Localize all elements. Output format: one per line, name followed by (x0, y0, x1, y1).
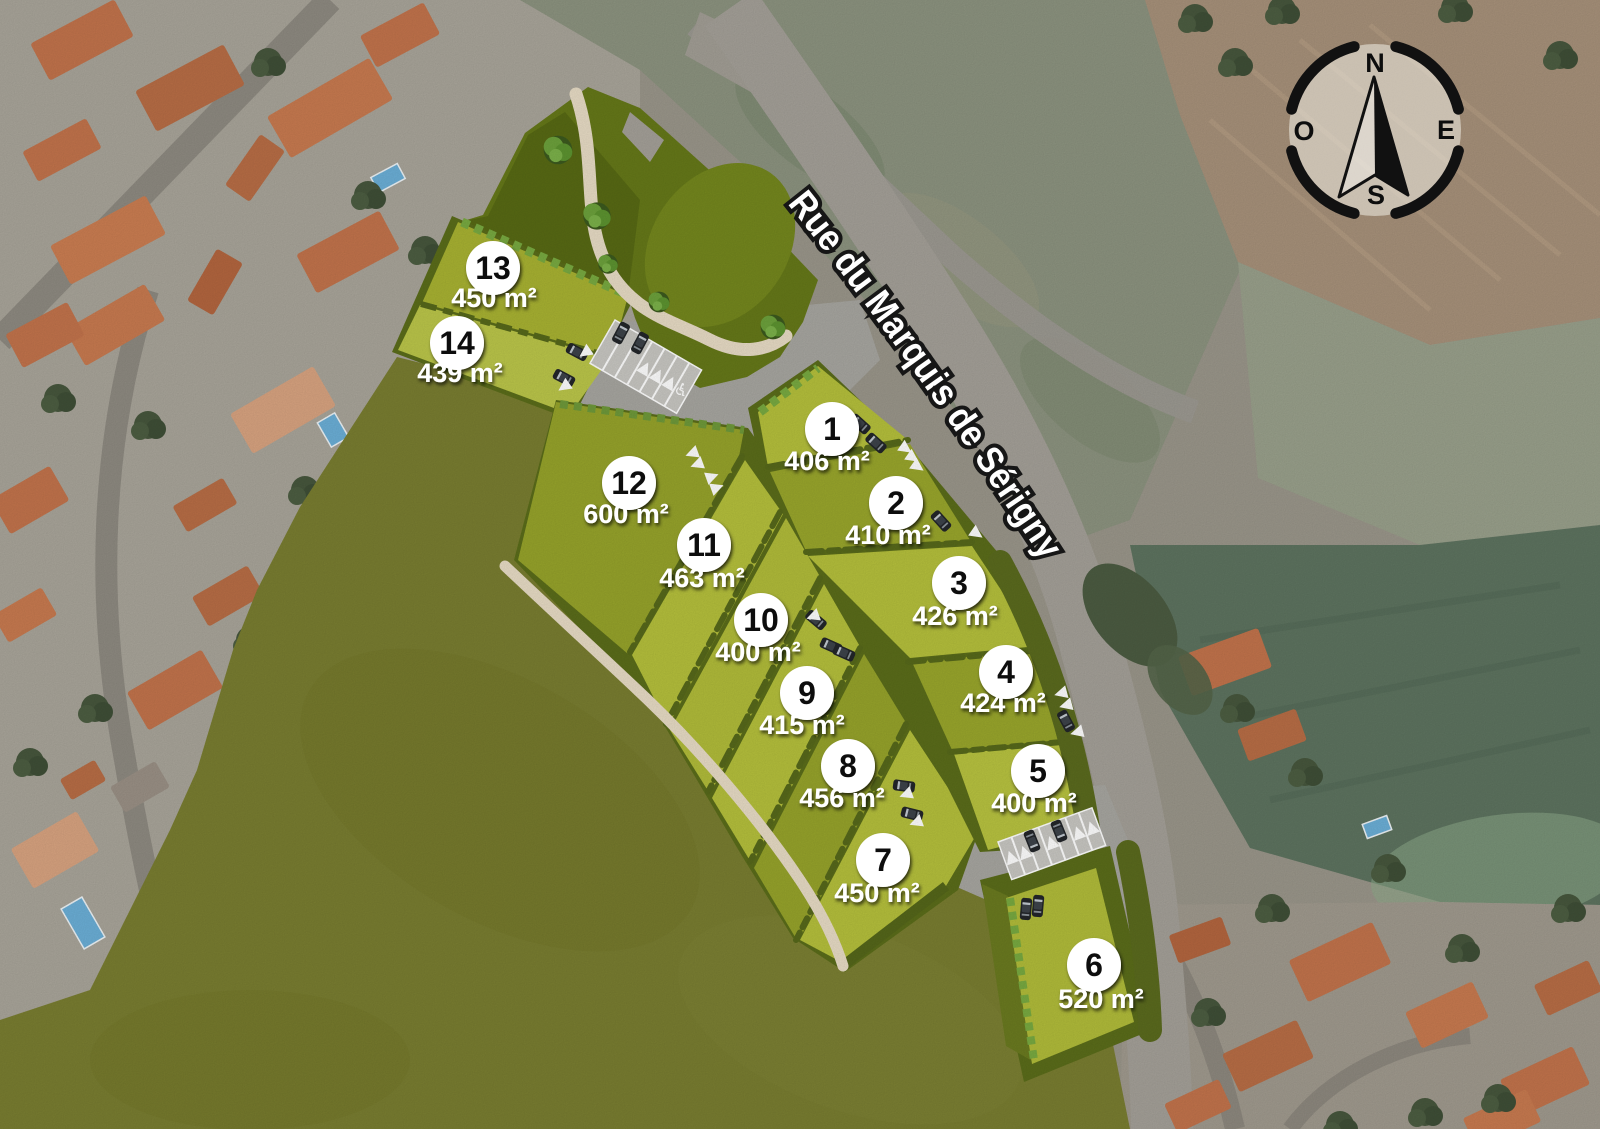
site-plan-screenshot: ♿ (0, 0, 1600, 1129)
plot-number: 14 (439, 325, 475, 361)
plot-area-label: 426 m² (912, 601, 998, 631)
plot-number: 3 (950, 565, 968, 601)
plot-number: 6 (1085, 947, 1103, 983)
plot-number: 4 (997, 654, 1015, 690)
compass-south-label: S (1367, 180, 1385, 210)
plot-number: 2 (887, 485, 905, 521)
plot-area-label: 600 m² (583, 499, 669, 529)
plot-number: 8 (839, 748, 857, 784)
plot-area-label: 450 m² (834, 878, 920, 908)
site-plan-map: ♿ (0, 0, 1600, 1129)
plot-area-label: 450 m² (451, 283, 537, 313)
plot-area-label: 456 m² (799, 783, 885, 813)
plot-area-label: 406 m² (784, 446, 870, 476)
compass-west-label: O (1293, 116, 1314, 146)
plot-area-label: 463 m² (659, 563, 745, 593)
plot-area-label: 400 m² (715, 637, 801, 667)
plot-area-label: 424 m² (960, 688, 1046, 718)
compass-east-label: E (1437, 115, 1455, 145)
plot-area-label: 520 m² (1058, 984, 1144, 1014)
plot-number: 5 (1029, 753, 1047, 789)
plot-number: 1 (823, 411, 841, 447)
plot-number: 13 (475, 250, 511, 286)
plot-number: 10 (743, 602, 779, 638)
compass-north-label: N (1365, 48, 1385, 78)
compass-rose: N E S O (1289, 44, 1461, 216)
plot-area-label: 415 m² (759, 710, 845, 740)
plot-area-label: 410 m² (845, 520, 931, 550)
plot-number: 7 (874, 842, 892, 878)
plot-number: 9 (798, 675, 816, 711)
plot-area-label: 439 m² (417, 358, 503, 388)
plot-area-label: 400 m² (991, 788, 1077, 818)
plot-number: 12 (611, 465, 647, 501)
plot-number: 11 (687, 527, 721, 563)
